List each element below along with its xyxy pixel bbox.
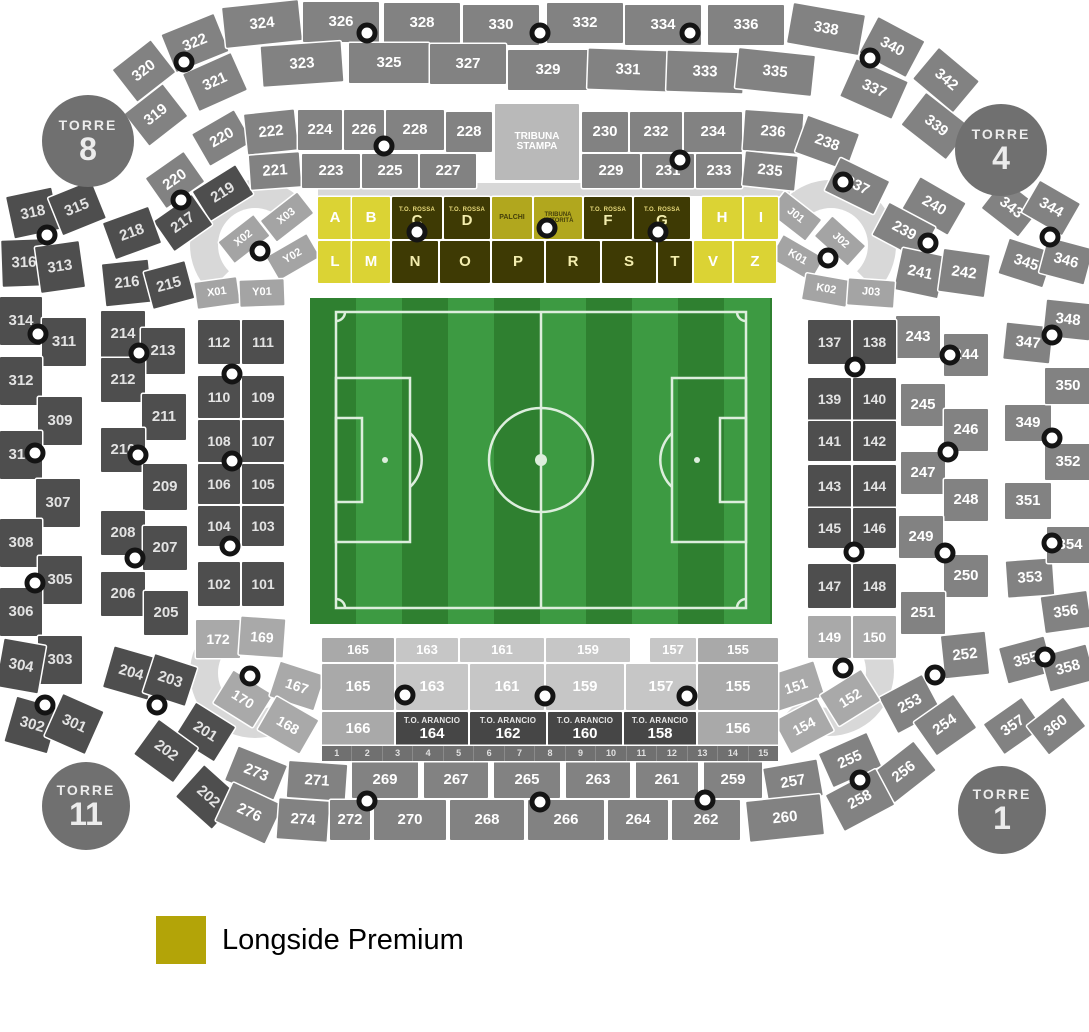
section-145[interactable]: 145 xyxy=(808,508,851,548)
section-label: 356 xyxy=(1053,602,1080,621)
section-label: H xyxy=(717,210,728,226)
section-148[interactable]: 148 xyxy=(853,564,896,608)
section-107[interactable]: 107 xyxy=(242,420,284,462)
section-270[interactable]: 270 xyxy=(374,800,446,840)
section-142[interactable]: 142 xyxy=(853,421,896,461)
section-309[interactable]: 309 xyxy=(38,397,82,445)
section-label: 202 xyxy=(151,737,181,764)
section-label: Y02 xyxy=(282,247,305,267)
section-label: 313 xyxy=(47,257,74,276)
section-label: PALCHI xyxy=(499,214,525,221)
section-222[interactable]: 222 xyxy=(244,109,298,154)
section-label: 172 xyxy=(206,632,229,647)
section-label: 166 xyxy=(345,721,370,737)
entrance-marker-icon xyxy=(1040,227,1061,248)
section-label: 260 xyxy=(772,809,799,827)
section-label: 335 xyxy=(762,63,789,81)
section-336[interactable]: 336 xyxy=(708,5,784,45)
section-label: 327 xyxy=(455,56,480,72)
section-label: 221 xyxy=(262,162,288,179)
section-b[interactable]: B xyxy=(352,197,390,239)
section-112[interactable]: 112 xyxy=(198,320,240,364)
section-307[interactable]: 307 xyxy=(36,479,80,527)
entrance-marker-icon xyxy=(222,451,243,472)
section-242[interactable]: 242 xyxy=(938,249,989,297)
section-label: J03 xyxy=(861,287,880,300)
section-105[interactable]: 105 xyxy=(242,464,284,504)
section-label: Y01 xyxy=(252,287,272,299)
section-l[interactable]: L xyxy=(318,241,352,283)
section-165[interactable]: 165 xyxy=(322,638,394,662)
section-label: A xyxy=(330,210,341,226)
section-label: 217 xyxy=(168,209,198,236)
section-label: X03 xyxy=(276,206,299,227)
section-label: 206 xyxy=(110,586,135,602)
section-label: 138 xyxy=(863,335,886,350)
section-label: 101 xyxy=(251,577,274,592)
section-label: L xyxy=(330,254,339,270)
section-label: 106 xyxy=(207,477,230,492)
entrance-marker-icon xyxy=(25,573,46,594)
entrance-marker-icon xyxy=(918,233,939,254)
section-166[interactable]: 166 xyxy=(322,712,394,746)
section-label: 256 xyxy=(889,758,918,786)
section-156[interactable]: 156 xyxy=(698,712,778,746)
entrance-marker-icon xyxy=(860,48,881,69)
section-243[interactable]: 243 xyxy=(896,316,940,358)
section-146[interactable]: 146 xyxy=(853,508,896,548)
section-label: 169 xyxy=(250,629,274,645)
section-251[interactable]: 251 xyxy=(901,592,945,634)
section-label: 268 xyxy=(474,812,499,828)
section-z[interactable]: Z xyxy=(734,241,776,283)
section-label: 165 xyxy=(347,643,369,657)
section-350[interactable]: 350 xyxy=(1045,368,1089,404)
entrance-marker-icon xyxy=(530,792,551,813)
section-label: 272 xyxy=(337,812,362,828)
section-label: 338 xyxy=(812,19,839,39)
entrance-marker-icon xyxy=(670,150,691,171)
section-label: 337 xyxy=(859,77,888,102)
section-label: 265 xyxy=(514,772,539,788)
section-109[interactable]: 109 xyxy=(242,376,284,418)
section-234[interactable]: 234 xyxy=(684,112,742,152)
section-label: 240 xyxy=(919,193,949,219)
section-label: 163 xyxy=(416,643,438,657)
section-101[interactable]: 101 xyxy=(242,562,284,606)
section-147[interactable]: 147 xyxy=(808,564,851,608)
section-label: 161 xyxy=(491,643,513,657)
section-label: 154 xyxy=(790,714,818,738)
section-223[interactable]: 223 xyxy=(302,154,360,188)
section-m[interactable]: M xyxy=(352,241,390,283)
section-d[interactable]: T.O. ROSSAD xyxy=(444,197,490,239)
section-247[interactable]: 247 xyxy=(901,452,945,494)
section-tribuna[interactable]: TRIBUNA STAMPA xyxy=(495,104,579,180)
section-248[interactable]: 248 xyxy=(944,479,988,521)
section-label: 306 xyxy=(8,604,33,620)
section-209[interactable]: 209 xyxy=(143,464,187,510)
section-label: 304 xyxy=(7,656,34,676)
section-label: 220 xyxy=(207,125,237,151)
section-230[interactable]: 230 xyxy=(582,112,628,152)
section-103[interactable]: 103 xyxy=(242,506,284,546)
section-label: 160 xyxy=(572,726,597,742)
section-215[interactable]: 215 xyxy=(144,261,194,309)
section-v[interactable]: V xyxy=(694,241,732,283)
row-number: 1 xyxy=(322,746,352,761)
section-label: M xyxy=(365,254,378,270)
entrance-marker-icon xyxy=(845,357,866,378)
section-label: 318 xyxy=(19,203,47,224)
section-j03[interactable]: J03 xyxy=(847,278,895,307)
section-252[interactable]: 252 xyxy=(941,632,989,678)
section-label: 358 xyxy=(1054,657,1082,679)
section-159[interactable]: 159 xyxy=(546,638,630,662)
legend-label: Longside Premium xyxy=(222,924,464,957)
section-label: 345 xyxy=(1012,252,1041,275)
section-225[interactable]: 225 xyxy=(362,154,418,188)
section-label: 326 xyxy=(328,14,353,30)
entrance-marker-icon xyxy=(1042,428,1063,449)
section-169[interactable]: 169 xyxy=(239,617,286,658)
section-label: 214 xyxy=(110,326,135,342)
section-155[interactable]: 155 xyxy=(698,664,778,710)
entrance-marker-icon xyxy=(147,695,168,716)
section-label: 165 xyxy=(345,679,370,695)
section-149[interactable]: 149 xyxy=(808,616,851,658)
section-t[interactable]: T xyxy=(658,241,692,283)
section-label: 215 xyxy=(155,274,183,296)
section-label: 208 xyxy=(110,525,135,541)
section-label: S xyxy=(624,254,634,270)
section-267[interactable]: 267 xyxy=(424,762,488,798)
section-330[interactable]: 330 xyxy=(463,5,539,45)
section-216[interactable]: 216 xyxy=(102,260,152,307)
section-label: 156 xyxy=(725,721,750,737)
entrance-marker-icon xyxy=(357,23,378,44)
section-label: 252 xyxy=(952,646,979,664)
football-pitch xyxy=(310,298,772,624)
section-palchi[interactable]: PALCHI xyxy=(492,197,532,239)
section-271[interactable]: 271 xyxy=(287,761,347,801)
section-139[interactable]: 139 xyxy=(808,378,851,420)
section-228[interactable]: 228 xyxy=(446,112,492,152)
section-label: 267 xyxy=(443,772,468,788)
section-label: 205 xyxy=(153,605,178,621)
section-s[interactable]: S xyxy=(602,241,656,283)
section-140[interactable]: 140 xyxy=(853,378,896,420)
section-label: 202 xyxy=(193,783,222,811)
section-351[interactable]: 351 xyxy=(1005,483,1051,519)
tower-8: TORRE8 xyxy=(42,95,134,187)
section-label: 143 xyxy=(818,479,841,494)
section-label: Z xyxy=(750,254,759,270)
section-221[interactable]: 221 xyxy=(249,152,301,189)
section-label: 350 xyxy=(1055,378,1080,394)
section-label: 148 xyxy=(863,579,886,594)
entrance-marker-icon xyxy=(537,218,558,239)
section-label: 262 xyxy=(693,812,718,828)
section-162[interactable]: T.O. ARANCIO162 xyxy=(470,712,546,746)
section-label: 307 xyxy=(45,495,70,511)
stadium-seat-map: 3203223243263283303323343363383403423193… xyxy=(0,0,1089,1032)
section-label: 253 xyxy=(895,691,924,717)
entrance-marker-icon xyxy=(240,666,261,687)
tower-4: TORRE4 xyxy=(955,104,1047,196)
section-352[interactable]: 352 xyxy=(1045,444,1089,480)
section-label: 212 xyxy=(110,372,135,388)
section-164[interactable]: T.O. ARANCIO164 xyxy=(396,712,468,746)
section-207[interactable]: 207 xyxy=(143,526,187,570)
section-label: 254 xyxy=(930,711,960,738)
section-332[interactable]: 332 xyxy=(547,3,623,43)
section-233[interactable]: 233 xyxy=(696,154,742,188)
entrance-marker-icon xyxy=(395,685,416,706)
section-label: 146 xyxy=(863,521,886,536)
entrance-marker-icon xyxy=(220,536,241,557)
section-356[interactable]: 356 xyxy=(1041,591,1089,633)
entrance-marker-icon xyxy=(925,665,946,686)
section-172[interactable]: 172 xyxy=(196,620,240,658)
row-number: 15 xyxy=(749,746,778,761)
section-158[interactable]: T.O. ARANCIO158 xyxy=(624,712,696,746)
section-353[interactable]: 353 xyxy=(1006,558,1054,597)
entrance-marker-icon xyxy=(35,695,56,716)
section-323[interactable]: 323 xyxy=(261,41,344,86)
section-label: 144 xyxy=(863,479,886,494)
section-312[interactable]: 312 xyxy=(0,357,42,405)
section-label: 227 xyxy=(435,163,460,179)
section-150[interactable]: 150 xyxy=(853,616,896,658)
section-o[interactable]: O xyxy=(440,241,490,283)
section-label: 157 xyxy=(662,643,684,657)
entrance-marker-icon xyxy=(1042,533,1063,554)
section-label: 170 xyxy=(229,687,257,712)
section-303[interactable]: 303 xyxy=(38,636,82,684)
section-232[interactable]: 232 xyxy=(630,112,682,152)
section-261[interactable]: 261 xyxy=(636,762,698,798)
section-label: 112 xyxy=(208,335,231,350)
entrance-marker-icon xyxy=(129,343,150,364)
tower-1: TORRE1 xyxy=(958,766,1046,854)
row-number: 10 xyxy=(596,746,626,761)
section-label: 111 xyxy=(252,335,274,350)
section-i[interactable]: I xyxy=(744,197,778,239)
section-163[interactable]: 163 xyxy=(396,638,458,662)
entrance-marker-icon xyxy=(818,248,839,269)
section-211[interactable]: 211 xyxy=(142,394,186,440)
section-h[interactable]: H xyxy=(702,197,742,239)
entrance-marker-icon xyxy=(28,324,49,345)
row-number: 4 xyxy=(413,746,443,761)
section-157[interactable]: 157 xyxy=(650,638,696,662)
section-228[interactable]: 228 xyxy=(386,110,444,150)
section-label: 346 xyxy=(1052,250,1080,272)
section-label: I xyxy=(759,210,763,226)
section-245[interactable]: 245 xyxy=(901,384,945,426)
section-304[interactable]: 304 xyxy=(0,639,46,694)
section-label: 216 xyxy=(114,274,141,292)
section-137[interactable]: 137 xyxy=(808,320,851,364)
section-236[interactable]: 236 xyxy=(743,110,804,154)
section-328[interactable]: 328 xyxy=(384,3,460,43)
section-n[interactable]: N xyxy=(392,241,438,283)
section-label: 213 xyxy=(150,343,175,359)
section-label: J01 xyxy=(784,206,806,226)
section-206[interactable]: 206 xyxy=(101,572,145,616)
section-label: 315 xyxy=(62,196,91,220)
section-264[interactable]: 264 xyxy=(608,800,668,840)
row-number: 8 xyxy=(535,746,565,761)
section-label: 158 xyxy=(647,726,672,742)
section-label: TRIBUNA STAMPA xyxy=(515,132,560,153)
row-number: 11 xyxy=(627,746,657,761)
section-155[interactable]: 155 xyxy=(698,638,778,662)
entrance-marker-icon xyxy=(850,770,871,791)
section-label: 157 xyxy=(648,679,673,695)
section-label: 249 xyxy=(908,529,933,545)
section-label: 248 xyxy=(953,492,978,508)
section-label: 360 xyxy=(1041,712,1070,740)
section-260[interactable]: 260 xyxy=(746,794,824,842)
section-144[interactable]: 144 xyxy=(853,465,896,507)
section-308[interactable]: 308 xyxy=(0,519,42,567)
entrance-marker-icon xyxy=(833,172,854,193)
section-label: 230 xyxy=(592,124,617,140)
row-number: 12 xyxy=(657,746,687,761)
section-224[interactable]: 224 xyxy=(298,110,342,150)
section-a[interactable]: A xyxy=(318,197,352,239)
section-label: 239 xyxy=(889,218,918,244)
section-label: 342 xyxy=(931,66,960,94)
section-label: 339 xyxy=(921,112,950,140)
entrance-marker-icon xyxy=(1042,325,1063,346)
section-111[interactable]: 111 xyxy=(242,320,284,364)
section-263[interactable]: 263 xyxy=(566,762,630,798)
section-label: 334 xyxy=(650,17,675,33)
section-102[interactable]: 102 xyxy=(198,562,240,606)
section-324[interactable]: 324 xyxy=(222,0,302,48)
section-360[interactable]: 360 xyxy=(1027,698,1085,755)
section-220[interactable]: 220 xyxy=(192,110,252,165)
row-number: 13 xyxy=(688,746,718,761)
section-label: 330 xyxy=(488,17,513,33)
section-161[interactable]: 161 xyxy=(460,638,544,662)
section-311[interactable]: 311 xyxy=(42,318,86,366)
section-label: 347 xyxy=(1015,334,1042,352)
legend: Longside Premium xyxy=(156,916,464,964)
section-229[interactable]: 229 xyxy=(582,154,640,188)
section-label: 207 xyxy=(152,540,177,556)
section-label: 152 xyxy=(836,686,864,711)
section-label: N xyxy=(410,254,421,270)
section-label: 149 xyxy=(818,630,841,645)
section-label: 323 xyxy=(289,55,315,72)
tower-number: 1 xyxy=(993,802,1011,834)
tower-11: TORRE11 xyxy=(42,762,130,850)
entrance-marker-icon xyxy=(128,445,149,466)
section-327[interactable]: 327 xyxy=(430,44,506,84)
section-label: O xyxy=(459,254,471,270)
section-label: 309 xyxy=(47,413,72,429)
section-label: 219 xyxy=(208,180,238,207)
section-label: 301 xyxy=(59,712,88,737)
section-label: 269 xyxy=(372,772,397,788)
section-y01[interactable]: Y01 xyxy=(240,279,285,307)
section-label: 150 xyxy=(863,630,886,645)
section-label: 250 xyxy=(953,568,978,584)
section-218[interactable]: 218 xyxy=(103,207,161,259)
entrance-marker-icon xyxy=(407,222,428,243)
section-274[interactable]: 274 xyxy=(277,798,330,841)
section-label: 147 xyxy=(818,579,841,594)
entrance-marker-icon xyxy=(648,222,669,243)
section-161[interactable]: 161 xyxy=(470,664,544,710)
section-label: 234 xyxy=(700,124,725,140)
section-165[interactable]: 165 xyxy=(322,664,394,710)
section-313[interactable]: 313 xyxy=(35,241,85,293)
section-212[interactable]: 212 xyxy=(101,358,145,402)
section-160[interactable]: T.O. ARANCIO160 xyxy=(548,712,622,746)
section-f[interactable]: T.O. ROSSAF xyxy=(584,197,632,239)
section-159[interactable]: 159 xyxy=(546,664,624,710)
section-r[interactable]: R xyxy=(546,241,600,283)
section-label: 164 xyxy=(419,726,444,742)
section-265[interactable]: 265 xyxy=(494,762,560,798)
pitch-markings-icon xyxy=(310,298,772,624)
entrance-marker-icon xyxy=(250,241,271,262)
section-label: 229 xyxy=(598,163,623,179)
section-label: 225 xyxy=(377,163,402,179)
section-p[interactable]: P xyxy=(492,241,544,283)
section-331[interactable]: 331 xyxy=(587,49,668,92)
section-268[interactable]: 268 xyxy=(450,800,524,840)
section-235[interactable]: 235 xyxy=(742,151,797,190)
section-label: 343 xyxy=(996,194,1025,222)
section-143[interactable]: 143 xyxy=(808,465,851,507)
tower-number: 8 xyxy=(79,133,97,165)
section-label: 228 xyxy=(402,122,427,138)
section-label: 329 xyxy=(535,62,560,78)
entrance-marker-icon xyxy=(174,52,195,73)
entrance-marker-icon xyxy=(833,658,854,679)
section-label: 233 xyxy=(706,163,731,179)
section-label: 167 xyxy=(284,675,311,696)
entrance-marker-icon xyxy=(125,548,146,569)
section-306[interactable]: 306 xyxy=(0,588,42,636)
section-141[interactable]: 141 xyxy=(808,421,851,461)
section-label: 273 xyxy=(241,761,270,785)
section-label: 203 xyxy=(156,669,185,692)
section-338[interactable]: 338 xyxy=(787,3,865,55)
section-label: 155 xyxy=(725,679,750,695)
section-205[interactable]: 205 xyxy=(144,591,188,635)
section-329[interactable]: 329 xyxy=(508,50,588,90)
section-227[interactable]: 227 xyxy=(420,154,476,188)
section-label: 328 xyxy=(409,15,434,31)
row-number: 9 xyxy=(566,746,596,761)
section-335[interactable]: 335 xyxy=(735,48,815,96)
row-number: 3 xyxy=(383,746,413,761)
section-label: 303 xyxy=(47,652,72,668)
legend-swatch-longside-premium xyxy=(156,916,206,964)
section-label: 211 xyxy=(152,409,176,425)
section-label: 161 xyxy=(494,679,519,695)
section-333[interactable]: 333 xyxy=(666,51,743,94)
section-325[interactable]: 325 xyxy=(349,43,429,83)
section-label: 238 xyxy=(813,131,842,154)
